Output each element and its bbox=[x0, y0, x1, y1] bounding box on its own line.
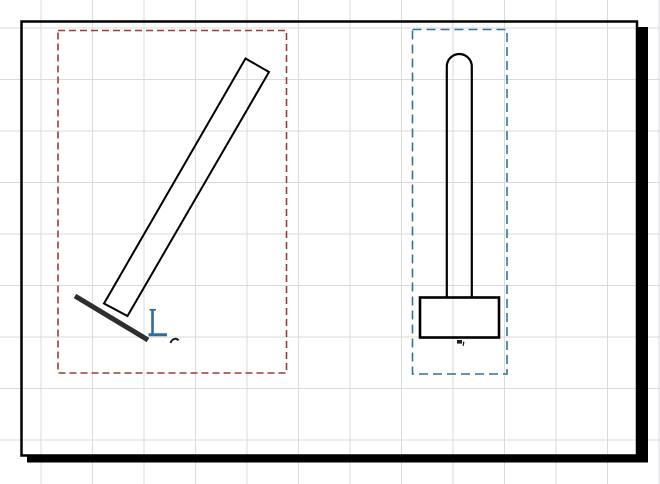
sheet-shadow-bottom bbox=[27, 455, 648, 463]
cursor-mark-left bbox=[171, 339, 179, 343]
sheet-border bbox=[22, 22, 638, 456]
left-selection-box[interactable] bbox=[58, 31, 287, 374]
insertion-mark-right-square bbox=[457, 340, 462, 344]
drawing-svg bbox=[0, 0, 660, 484]
insertion-mark-right-tail bbox=[463, 342, 464, 346]
footing-extrusion[interactable] bbox=[420, 298, 499, 338]
drawing-canvas[interactable] bbox=[0, 0, 660, 484]
tilted-bar-extrusion[interactable] bbox=[104, 59, 269, 317]
column-extrusion[interactable] bbox=[447, 54, 472, 298]
sheet-shadow-right bbox=[638, 27, 649, 463]
ground-reference-line[interactable] bbox=[75, 296, 148, 340]
right-selection-box[interactable] bbox=[413, 30, 508, 375]
